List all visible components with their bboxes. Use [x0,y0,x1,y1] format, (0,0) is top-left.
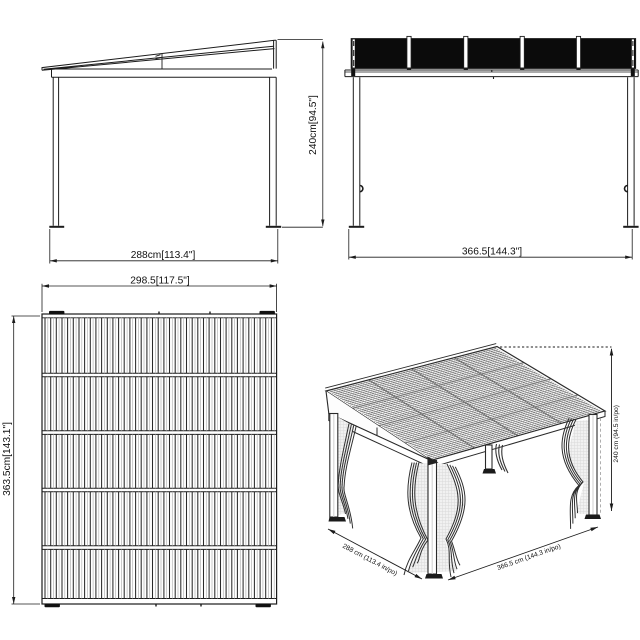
svg-text:240 cm (94.5 in/po): 240 cm (94.5 in/po) [613,405,620,463]
svg-text:298.5[117.5"]: 298.5[117.5"] [130,276,190,287]
svg-text:366.5[144.3"]: 366.5[144.3"] [462,247,522,258]
svg-text:288cm[113.4"]: 288cm[113.4"] [131,250,196,261]
svg-text:363.5cm[143.1"]: 363.5cm[143.1"] [2,422,13,496]
svg-text:240cm[94.5"]: 240cm[94.5"] [308,95,319,155]
